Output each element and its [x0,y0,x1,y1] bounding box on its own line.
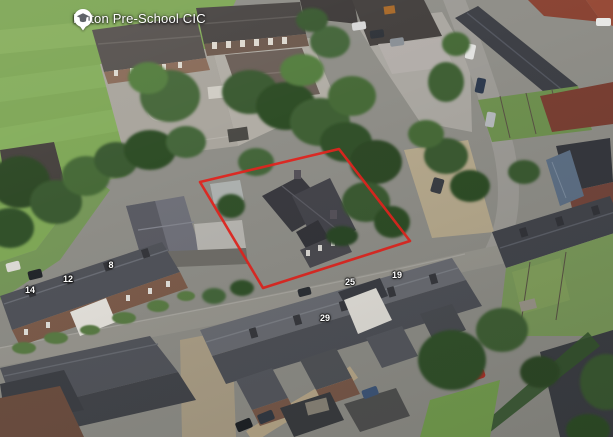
aerial-view-canvas[interactable]: Milton Pre-School CIC 14 12 8 29 25 19 [0,0,613,437]
house-number-label: 25 [345,277,355,287]
aerial-photo [0,0,613,437]
house-number-label: 19 [392,270,402,280]
house-number-label: 29 [320,313,330,323]
house-number-label: 12 [63,274,73,284]
house-number-label: 14 [25,285,35,295]
graduation-cap-icon [73,8,93,34]
school-poi-marker[interactable]: Milton Pre-School CIC [73,8,206,30]
house-number-label: 8 [108,260,113,270]
